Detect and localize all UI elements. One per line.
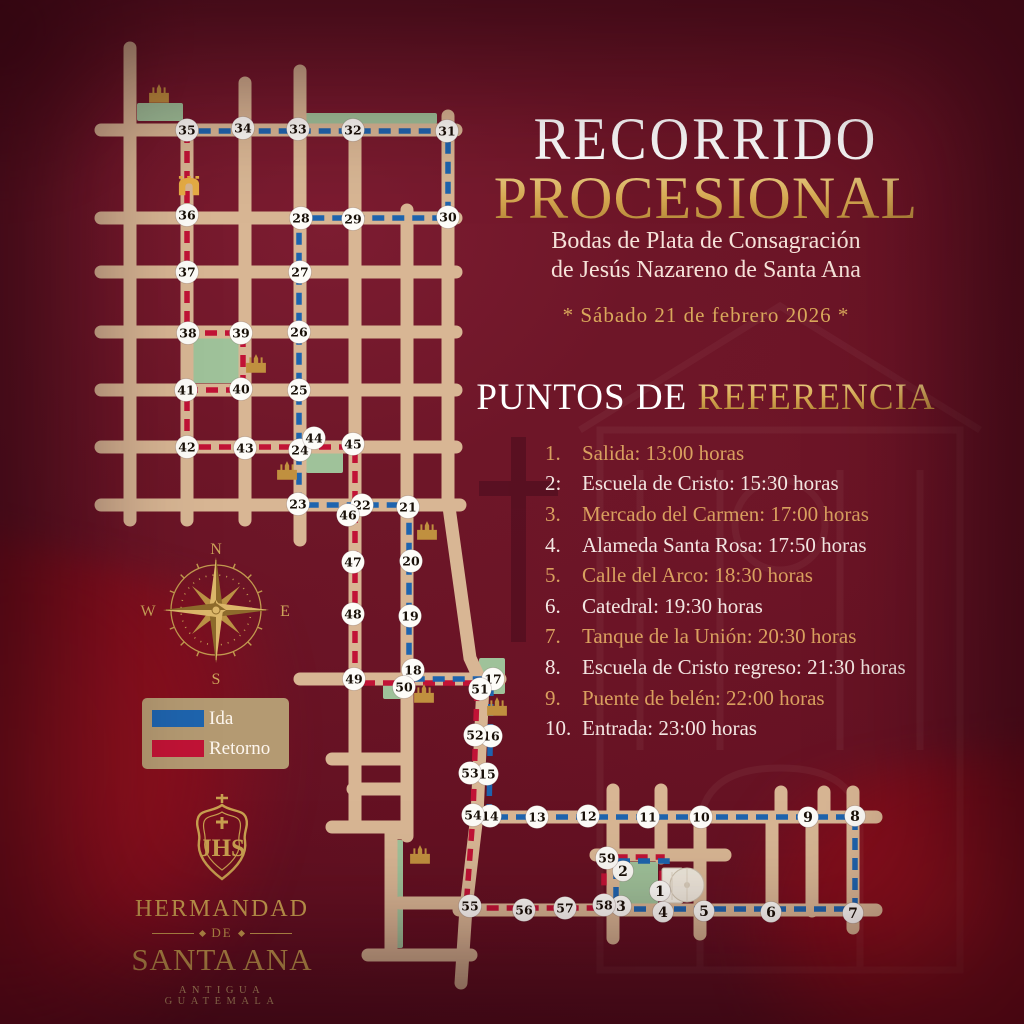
route-marker-25: 25 (288, 379, 311, 402)
svg-text:46: 46 (339, 508, 357, 523)
flourish-rule (152, 933, 194, 934)
reference-list: 1.Salida: 13:00 horas2:Escuela de Cristo… (545, 438, 985, 744)
route-marker-55: 55 (459, 895, 482, 918)
svg-text:23: 23 (289, 497, 306, 512)
reference-item: 8.Escuela de Cristo regreso: 21:30 horas (545, 652, 985, 683)
svg-text:40: 40 (232, 382, 250, 397)
svg-text:4: 4 (658, 905, 668, 921)
svg-text:51: 51 (471, 682, 488, 697)
shield-crest-icon: JHS (179, 793, 265, 887)
title-line1: RECORRIDO (423, 104, 989, 173)
svg-text:41: 41 (177, 383, 194, 398)
svg-text:20: 20 (402, 554, 420, 569)
route-marker-19: 19 (399, 605, 422, 628)
svg-text:54: 54 (464, 808, 482, 823)
legend-retorno-label: Retorno (209, 738, 270, 760)
svg-text:25: 25 (290, 383, 307, 398)
route-marker-38: 38 (177, 322, 200, 345)
svg-text:7: 7 (848, 906, 858, 922)
compass-rose: N E S W (140, 541, 289, 688)
route-marker-56: 56 (513, 899, 536, 922)
svg-text:6: 6 (766, 905, 776, 921)
reference-heading: PUNTOS DE REFERENCIA (423, 376, 989, 419)
title-line2: PROCESIONAL (423, 164, 989, 233)
reference-item: 3.Mercado del Carmen: 17:00 horas (545, 499, 985, 530)
svg-text:57: 57 (556, 901, 573, 916)
route-marker-52: 52 (464, 724, 487, 747)
reference-item-number: 9. (545, 686, 582, 711)
svg-text:48: 48 (344, 607, 362, 622)
svg-text:28: 28 (292, 211, 310, 226)
reference-item-text: Escuela de Cristo regreso: 21:30 horas (582, 655, 985, 680)
route-marker-28: 28 (290, 207, 313, 230)
hermandad-logo: JHS HERMANDAD DE SANTA ANA ANTIGUA GUATE… (118, 793, 326, 1007)
route-marker-42: 42 (176, 436, 199, 459)
svg-text:11: 11 (639, 810, 656, 825)
flourish-rule (250, 933, 292, 934)
poster-canvas: N E S W 12345678910111213141516171819202… (0, 0, 1024, 1024)
compass-e-label: E (280, 603, 290, 620)
route-marker-26: 26 (288, 321, 311, 344)
route-marker-41: 41 (175, 379, 198, 402)
reference-heading-gold: REFERENCIA (697, 377, 935, 418)
reference-item-number: 7. (545, 624, 582, 649)
svg-text:37: 37 (178, 265, 195, 280)
church-icon (487, 697, 507, 716)
svg-text:35: 35 (178, 123, 195, 138)
route-marker-21: 21 (397, 496, 420, 519)
church-icon (149, 84, 169, 103)
legend-retorno-swatch (152, 740, 204, 757)
reference-item-text: Alameda Santa Rosa: 17:50 horas (582, 533, 985, 558)
reference-item-number: 4. (545, 533, 582, 558)
svg-text:3: 3 (616, 899, 626, 915)
svg-text:19: 19 (401, 609, 418, 624)
route-marker-35: 35 (176, 119, 199, 142)
route-marker-49: 49 (343, 668, 366, 691)
reference-item-text: Calle del Arco: 18:30 horas (582, 563, 985, 588)
svg-text:21: 21 (399, 500, 416, 515)
svg-text:2: 2 (618, 864, 628, 880)
legend-ida-row: Ida (152, 708, 289, 730)
compass-n-label: N (210, 541, 222, 558)
park (306, 452, 343, 473)
reference-item-text: Tanque de la Unión: 20:30 horas (582, 624, 985, 649)
compass-w-label: W (140, 603, 156, 620)
reference-item-number: 3. (545, 502, 582, 527)
reference-item-number: 8. (545, 655, 582, 680)
svg-text:42: 42 (178, 440, 195, 455)
route-marker-53: 53 (459, 762, 482, 785)
logo-santa-ana: SANTA ANA (118, 942, 326, 978)
svg-text:9: 9 (803, 810, 813, 826)
reference-item-text: Entrada: 23:00 horas (582, 716, 985, 741)
route-marker-57: 57 (554, 897, 577, 920)
park (137, 103, 183, 121)
svg-text:5: 5 (699, 904, 709, 920)
svg-text:8: 8 (850, 809, 860, 825)
logo-monogram: JHS (199, 835, 245, 862)
reference-heading-white: PUNTOS DE (476, 377, 697, 418)
svg-text:43: 43 (236, 441, 253, 456)
svg-text:44: 44 (305, 431, 323, 446)
route-marker-29: 29 (342, 208, 365, 231)
park (305, 113, 437, 124)
legend-ida-label: Ida (209, 708, 233, 730)
flourish-diamond (199, 929, 206, 936)
route-marker-40: 40 (230, 378, 253, 401)
svg-text:56: 56 (515, 903, 533, 918)
route-marker-13: 13 (526, 806, 549, 829)
reference-item: 9.Puente de belén: 22:00 horas (545, 683, 985, 714)
route-marker-27: 27 (289, 261, 312, 284)
svg-text:13: 13 (528, 810, 545, 825)
reference-item-text: Puente de belén: 22:00 horas (582, 686, 985, 711)
route-marker-54: 54 (462, 804, 485, 827)
svg-text:33: 33 (289, 122, 306, 137)
route-marker-34: 34 (232, 117, 255, 140)
svg-text:50: 50 (395, 680, 413, 695)
svg-text:26: 26 (290, 325, 308, 340)
route-marker-37: 37 (176, 261, 199, 284)
route-marker-10: 10 (690, 806, 713, 829)
reference-item: 1.Salida: 13:00 horas (545, 438, 985, 469)
reference-item-number: 5. (545, 563, 582, 588)
event-date: * Sábado 21 de febrero 2026 * (423, 303, 989, 328)
route-marker-9: 9 (798, 807, 819, 828)
route-marker-46: 46 (337, 504, 360, 527)
reference-item-text: Escuela de Cristo: 15:30 horas (582, 471, 985, 496)
reference-item: 7.Tanque de la Unión: 20:30 horas (545, 622, 985, 653)
reference-item: 6.Catedral: 19:30 horas (545, 591, 985, 622)
reference-item-number: 2: (545, 471, 582, 496)
svg-text:1: 1 (655, 884, 665, 900)
reference-item: 5.Calle del Arco: 18:30 horas (545, 560, 985, 591)
route-marker-44: 44 (303, 427, 326, 450)
route-marker-7: 7 (843, 903, 864, 924)
svg-text:32: 32 (344, 123, 361, 138)
svg-text:58: 58 (595, 898, 613, 913)
reference-item: 4.Alameda Santa Rosa: 17:50 horas (545, 530, 985, 561)
reference-item: 2:Escuela de Cristo: 15:30 horas (545, 469, 985, 500)
svg-text:47: 47 (344, 555, 361, 570)
route-marker-50: 50 (393, 676, 416, 699)
route-marker-48: 48 (342, 603, 365, 626)
compass-star (163, 557, 269, 663)
svg-text:18: 18 (404, 663, 422, 678)
route-marker-32: 32 (342, 119, 365, 142)
route-marker-51: 51 (469, 678, 492, 701)
logo-antigua-guatemala: ANTIGUA GUATEMALA (118, 985, 326, 1007)
legend-ida-swatch (152, 710, 204, 727)
svg-text:27: 27 (291, 265, 308, 280)
route-marker-5: 5 (694, 901, 715, 922)
reference-item-text: Salida: 13:00 horas (582, 441, 985, 466)
park (193, 337, 239, 383)
route-marker-33: 33 (287, 118, 310, 141)
svg-text:10: 10 (692, 810, 710, 825)
route-marker-6: 6 (761, 902, 782, 923)
compass-s-label: S (212, 671, 221, 688)
logo-hermandad: HERMANDAD (118, 896, 326, 923)
svg-text:59: 59 (598, 851, 615, 866)
svg-text:45: 45 (344, 437, 361, 452)
route-marker-8: 8 (845, 806, 866, 827)
reference-item: 10.Entrada: 23:00 horas (545, 713, 985, 744)
reference-item-text: Catedral: 19:30 horas (582, 594, 985, 619)
route-marker-20: 20 (400, 550, 423, 573)
svg-text:53: 53 (461, 766, 478, 781)
route-marker-4: 4 (653, 902, 674, 923)
route-marker-43: 43 (234, 437, 257, 460)
legend-retorno-row: Retorno (152, 738, 289, 760)
route-marker-11: 11 (637, 806, 660, 829)
route-marker-59: 59 (596, 847, 619, 870)
svg-text:55: 55 (461, 899, 478, 914)
reference-item-number: 6. (545, 594, 582, 619)
route-marker-12: 12 (577, 805, 600, 828)
church-icon (410, 845, 430, 864)
logo-de: DE (211, 925, 232, 941)
reference-item-number: 10. (545, 716, 582, 741)
svg-text:39: 39 (232, 326, 249, 341)
street (448, 500, 482, 684)
logo-de-row: DE (118, 925, 326, 941)
svg-text:36: 36 (178, 208, 196, 223)
subtitle-line2: de Jesús Nazareno de Santa Ana (423, 256, 989, 285)
church-icon (414, 684, 434, 703)
route-marker-47: 47 (342, 551, 365, 574)
svg-text:12: 12 (579, 809, 596, 824)
svg-text:52: 52 (466, 728, 483, 743)
route-marker-23: 23 (287, 493, 310, 516)
legend: Ida Retorno (142, 698, 289, 769)
svg-text:38: 38 (179, 326, 197, 341)
flourish-diamond (238, 929, 245, 936)
svg-text:29: 29 (344, 212, 361, 227)
reference-item-number: 1. (545, 441, 582, 466)
route-marker-39: 39 (230, 322, 253, 345)
reference-item-text: Mercado del Carmen: 17:00 horas (582, 502, 985, 527)
route-marker-45: 45 (342, 433, 365, 456)
route-marker-1: 1 (650, 881, 671, 902)
svg-text:34: 34 (234, 121, 252, 136)
route-marker-58: 58 (593, 894, 616, 917)
subtitle-line1: Bodas de Plata de Consagración (423, 227, 989, 256)
svg-text:49: 49 (345, 672, 362, 687)
church-icon (417, 521, 437, 540)
route-marker-36: 36 (176, 204, 199, 227)
title-subtitle: Bodas de Plata de Consagración de Jesús … (423, 227, 989, 285)
